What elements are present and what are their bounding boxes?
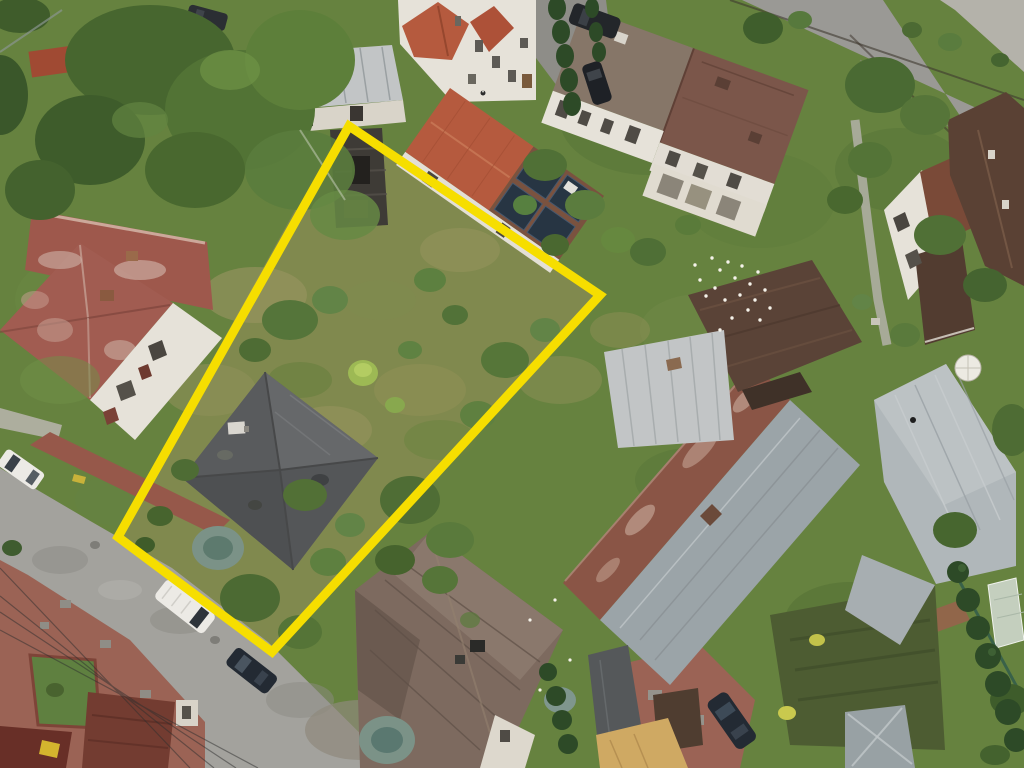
patio-umbrella xyxy=(955,355,981,381)
pedestrian xyxy=(481,91,486,96)
aerial-photo xyxy=(0,0,1024,768)
